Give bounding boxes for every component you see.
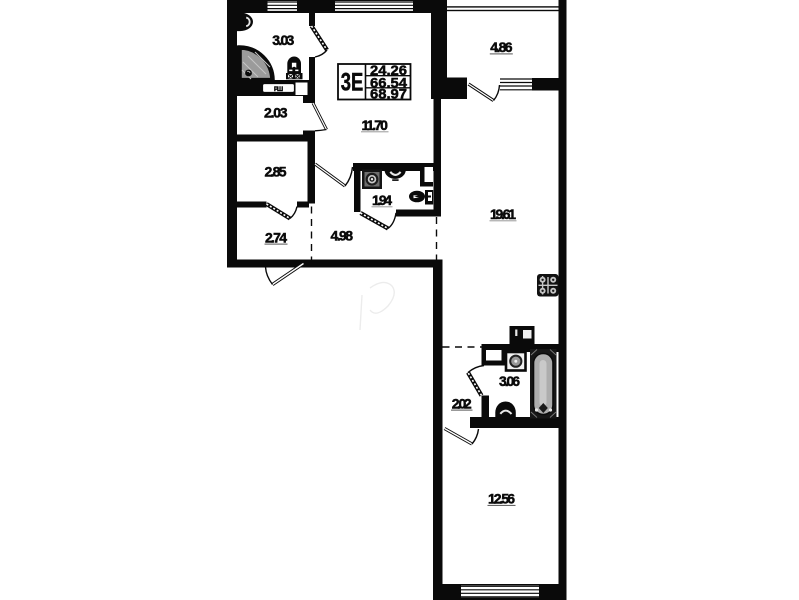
svg-text:3Е: 3Е: [341, 69, 364, 97]
svg-text:68.97: 68.97: [370, 86, 407, 101]
svg-text:2.74: 2.74: [265, 229, 287, 245]
svg-text:2.03: 2.03: [264, 105, 288, 121]
svg-text:19.61: 19.61: [490, 206, 516, 222]
svg-text:4.86: 4.86: [490, 39, 513, 55]
svg-text:3.06: 3.06: [499, 373, 520, 389]
svg-text:3.03: 3.03: [272, 32, 294, 48]
svg-text:12.56: 12.56: [488, 491, 515, 507]
svg-text:4.98: 4.98: [331, 227, 354, 243]
svg-text:2.02: 2.02: [452, 395, 472, 411]
svg-text:2.85: 2.85: [265, 163, 287, 179]
svg-text:11.70: 11.70: [361, 117, 388, 133]
svg-text:1.94: 1.94: [372, 192, 392, 208]
svg-text:РШ: РШ: [274, 87, 283, 93]
